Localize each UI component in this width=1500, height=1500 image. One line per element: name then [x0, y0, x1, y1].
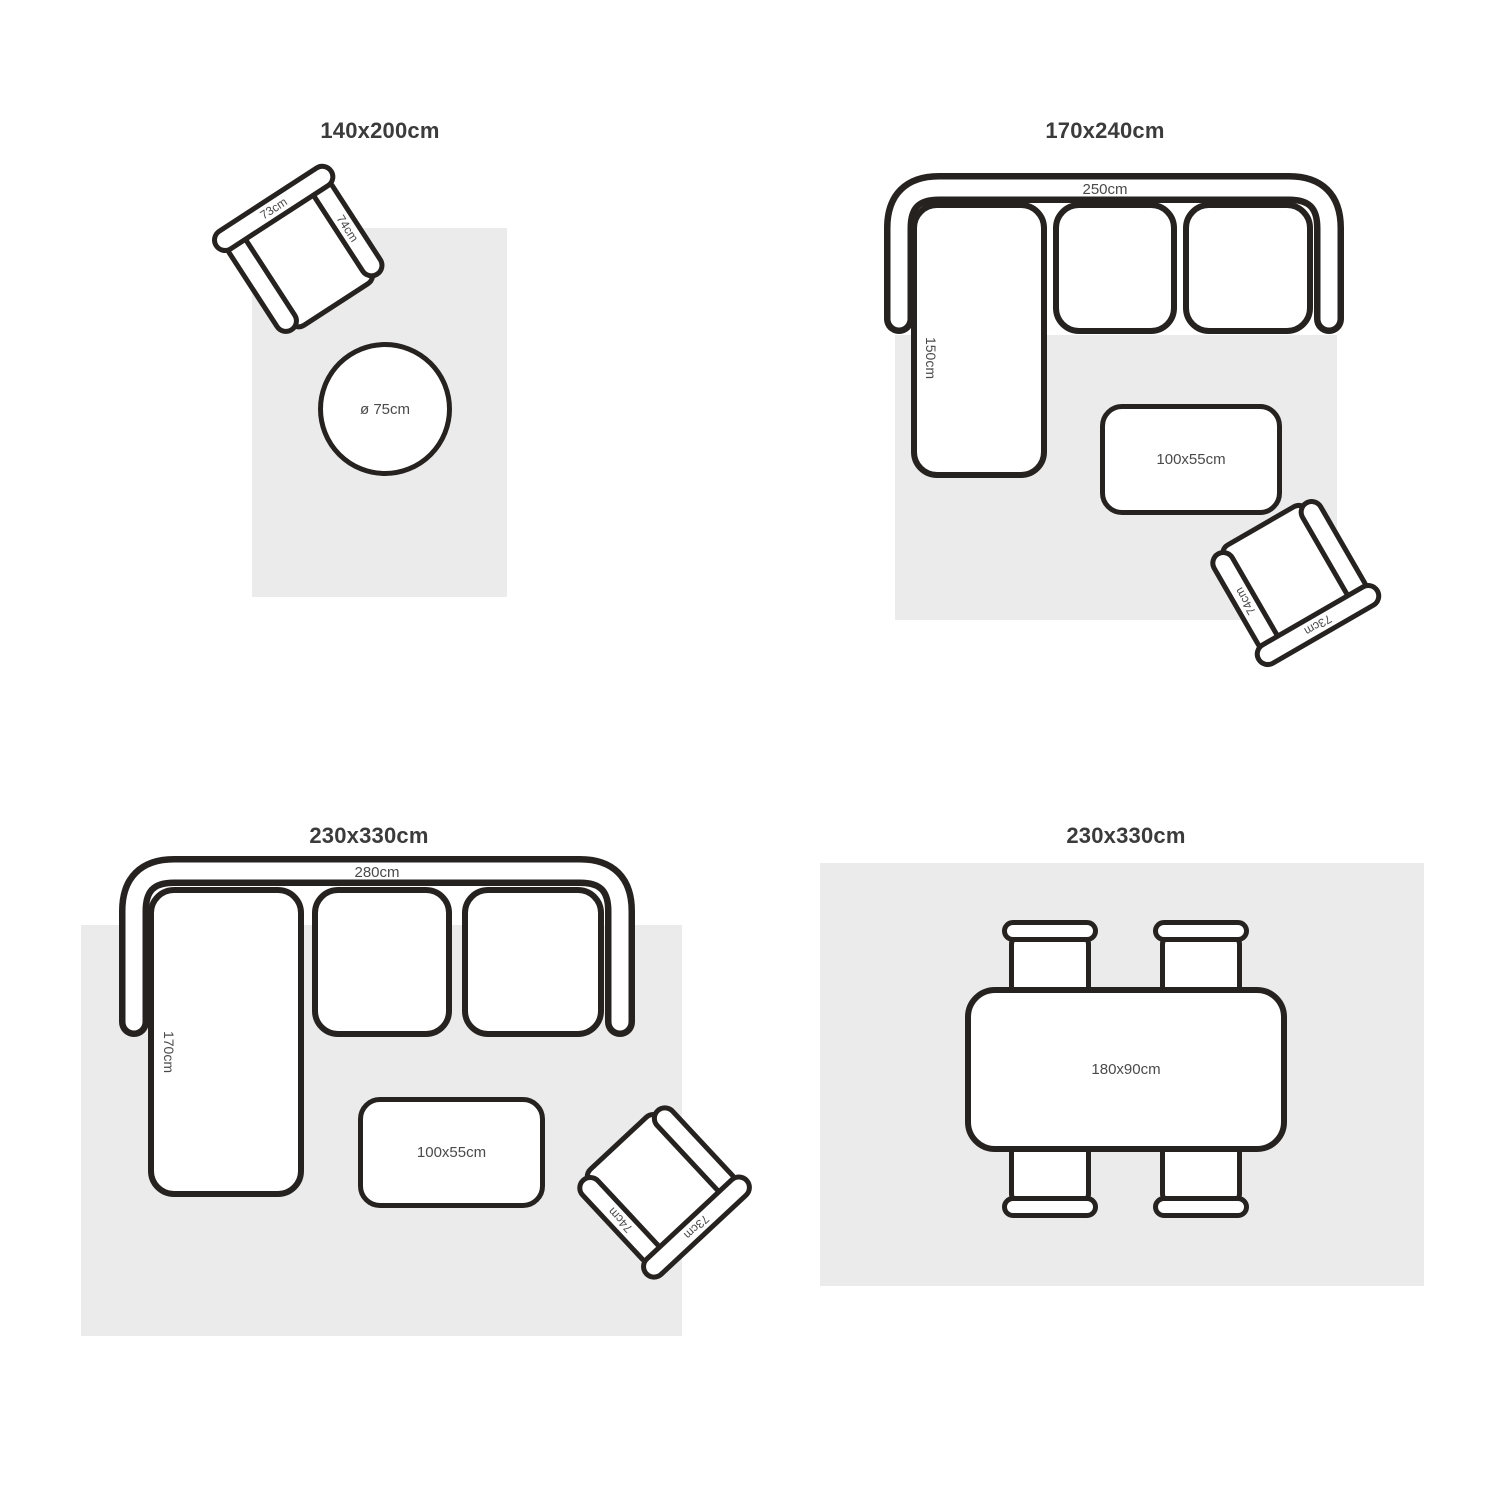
rug-size-guide-diagram: 140x200cm 73cm 74cm ø 75cm 170x240cm 250…	[0, 0, 1500, 1500]
sofa-chaise-dimension: 150cm	[923, 328, 939, 388]
rug-size-title-2: 170x240cm	[955, 118, 1255, 144]
sofa-seat-cushion	[462, 887, 604, 1037]
coffee-table-dimension: 100x55cm	[1156, 451, 1225, 468]
dining-chair-back	[1153, 1196, 1249, 1218]
round-table-dimension: ø 75cm	[360, 401, 410, 418]
sofa-chaise-cushion: 170cm	[148, 887, 304, 1197]
sofa-chaise-cushion: 150cm	[911, 202, 1047, 478]
dining-chair-back	[1002, 1196, 1098, 1218]
sofa-seat-cushion	[1183, 202, 1313, 334]
dining-table-dimension: 180x90cm	[1091, 1061, 1160, 1078]
sofa-chaise-dimension: 170cm	[161, 1022, 177, 1082]
dining-chair-back	[1153, 920, 1249, 942]
rug-size-title-4: 230x330cm	[976, 823, 1276, 849]
coffee-table: 100x55cm	[1100, 404, 1282, 515]
dining-table: 180x90cm	[965, 987, 1287, 1152]
round-side-table: ø 75cm	[318, 342, 452, 476]
coffee-table-dimension: 100x55cm	[417, 1144, 486, 1161]
rug-size-title-1: 140x200cm	[230, 118, 530, 144]
armchair-back-dimension: 73cm	[1302, 612, 1334, 639]
sofa-seat-cushion	[312, 887, 452, 1037]
dining-chair-back	[1002, 920, 1098, 942]
sofa-width-dimension: 250cm	[1005, 181, 1205, 199]
sofa-width-dimension: 280cm	[277, 864, 477, 882]
coffee-table: 100x55cm	[358, 1097, 545, 1208]
rug-size-title-3: 230x330cm	[219, 823, 519, 849]
sofa-seat-cushion	[1053, 202, 1177, 334]
